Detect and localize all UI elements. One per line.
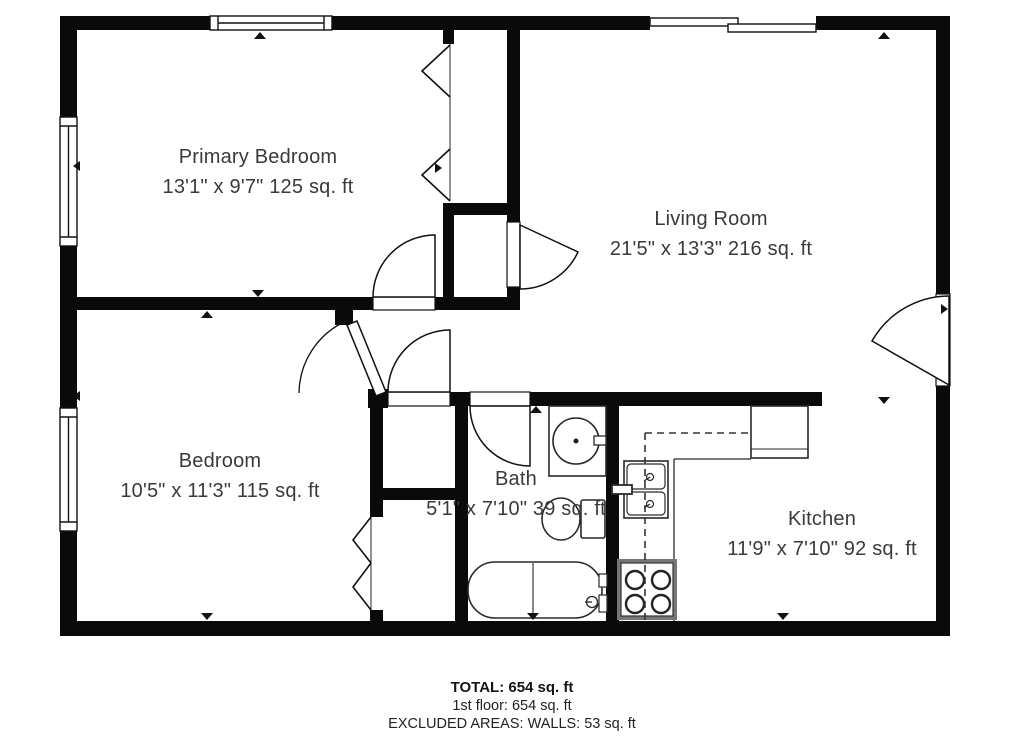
- door-leaf-bedroom: [347, 321, 386, 396]
- sliding-door: [650, 15, 816, 32]
- marker-up: [878, 32, 890, 39]
- stove: [619, 561, 675, 618]
- marker-up: [201, 311, 213, 318]
- window-primary-top: [210, 16, 332, 30]
- wall-primary-closet-divider: [443, 203, 520, 215]
- room-name: Bedroom: [70, 446, 370, 476]
- room-dims: 21'5" x 13'3" 216 sq. ft: [561, 234, 861, 264]
- label-kitchen: Kitchen 11'9" x 7'10" 92 sq. ft: [672, 504, 972, 564]
- marker-down: [777, 613, 789, 620]
- marker-right: [435, 163, 442, 173]
- wall-primary-south-east: [435, 297, 520, 310]
- wall-left: [60, 16, 77, 635]
- marker-up: [254, 32, 266, 39]
- label-primary-bedroom: Primary Bedroom 13'1" x 9'7" 125 sq. ft: [88, 142, 428, 202]
- room-dims: 10'5" x 11'3" 115 sq. ft: [70, 476, 370, 506]
- marker-down: [878, 397, 890, 404]
- bathtub: [468, 562, 607, 618]
- wall-primary-south-west: [60, 297, 373, 310]
- door-swing-hall-closet: [388, 330, 450, 392]
- room-name: Living Room: [561, 204, 861, 234]
- room-name: Bath: [366, 464, 666, 494]
- marker-down: [201, 613, 213, 620]
- window-primary-left: [60, 117, 77, 246]
- area-summary: TOTAL: 654 sq. ft 1st floor: 654 sq. ft …: [0, 678, 1024, 733]
- tub-fitting-bottom: [599, 595, 607, 612]
- sliding-door-panel-right: [728, 24, 816, 32]
- door-swing-bath: [470, 406, 530, 466]
- excluded-area: EXCLUDED AREAS: WALLS: 53 sq. ft: [0, 715, 1024, 733]
- opening-bath: [470, 392, 530, 406]
- wall-bath-kitchen-north: [530, 392, 822, 406]
- floorplan-page: Primary Bedroom 13'1" x 9'7" 125 sq. ft …: [0, 0, 1024, 738]
- faucet: [594, 436, 606, 445]
- room-dims: 5'1" x 7'10" 39 sq. ft: [366, 494, 666, 524]
- wall-primary-closet-west: [443, 215, 454, 297]
- marker-down: [252, 290, 264, 297]
- bifold-bedroom-closet: [353, 517, 371, 610]
- total-area: TOTAL: 654 sq. ft: [0, 678, 1024, 697]
- room-name: Kitchen: [672, 504, 972, 534]
- bifold-doors: [353, 44, 450, 610]
- label-bedroom: Bedroom 10'5" x 11'3" 115 sq. ft: [70, 446, 370, 506]
- room-dims: 13'1" x 9'7" 125 sq. ft: [88, 172, 428, 202]
- label-living-room: Living Room 21'5" x 13'3" 216 sq. ft: [561, 204, 861, 264]
- wall-hall-closet-west-lower: [370, 610, 383, 623]
- refrigerator: [751, 406, 808, 458]
- door-swing-primary-bedroom: [373, 235, 435, 297]
- door-swing-bedroom-arc: [299, 322, 344, 393]
- first-floor-area: 1st floor: 654 sq. ft: [0, 697, 1024, 715]
- label-bath: Bath 5'1" x 7'10" 39 sq. ft: [366, 464, 666, 524]
- opening-living-closet: [507, 222, 520, 287]
- sliding-door-panel-left: [650, 18, 738, 26]
- room-name: Primary Bedroom: [88, 142, 428, 172]
- door-swing-entry: [872, 296, 949, 385]
- opening-hall-closet: [388, 392, 450, 406]
- marker-up: [530, 406, 542, 413]
- wall-bottom: [60, 621, 950, 636]
- tub-fitting-top: [599, 574, 607, 587]
- floorplan-drawing: [0, 0, 1024, 738]
- room-dims: 11'9" x 7'10" 92 sq. ft: [672, 534, 972, 564]
- opening-primary-bedroom: [373, 297, 435, 310]
- wall-primary-closet-stub: [443, 30, 454, 44]
